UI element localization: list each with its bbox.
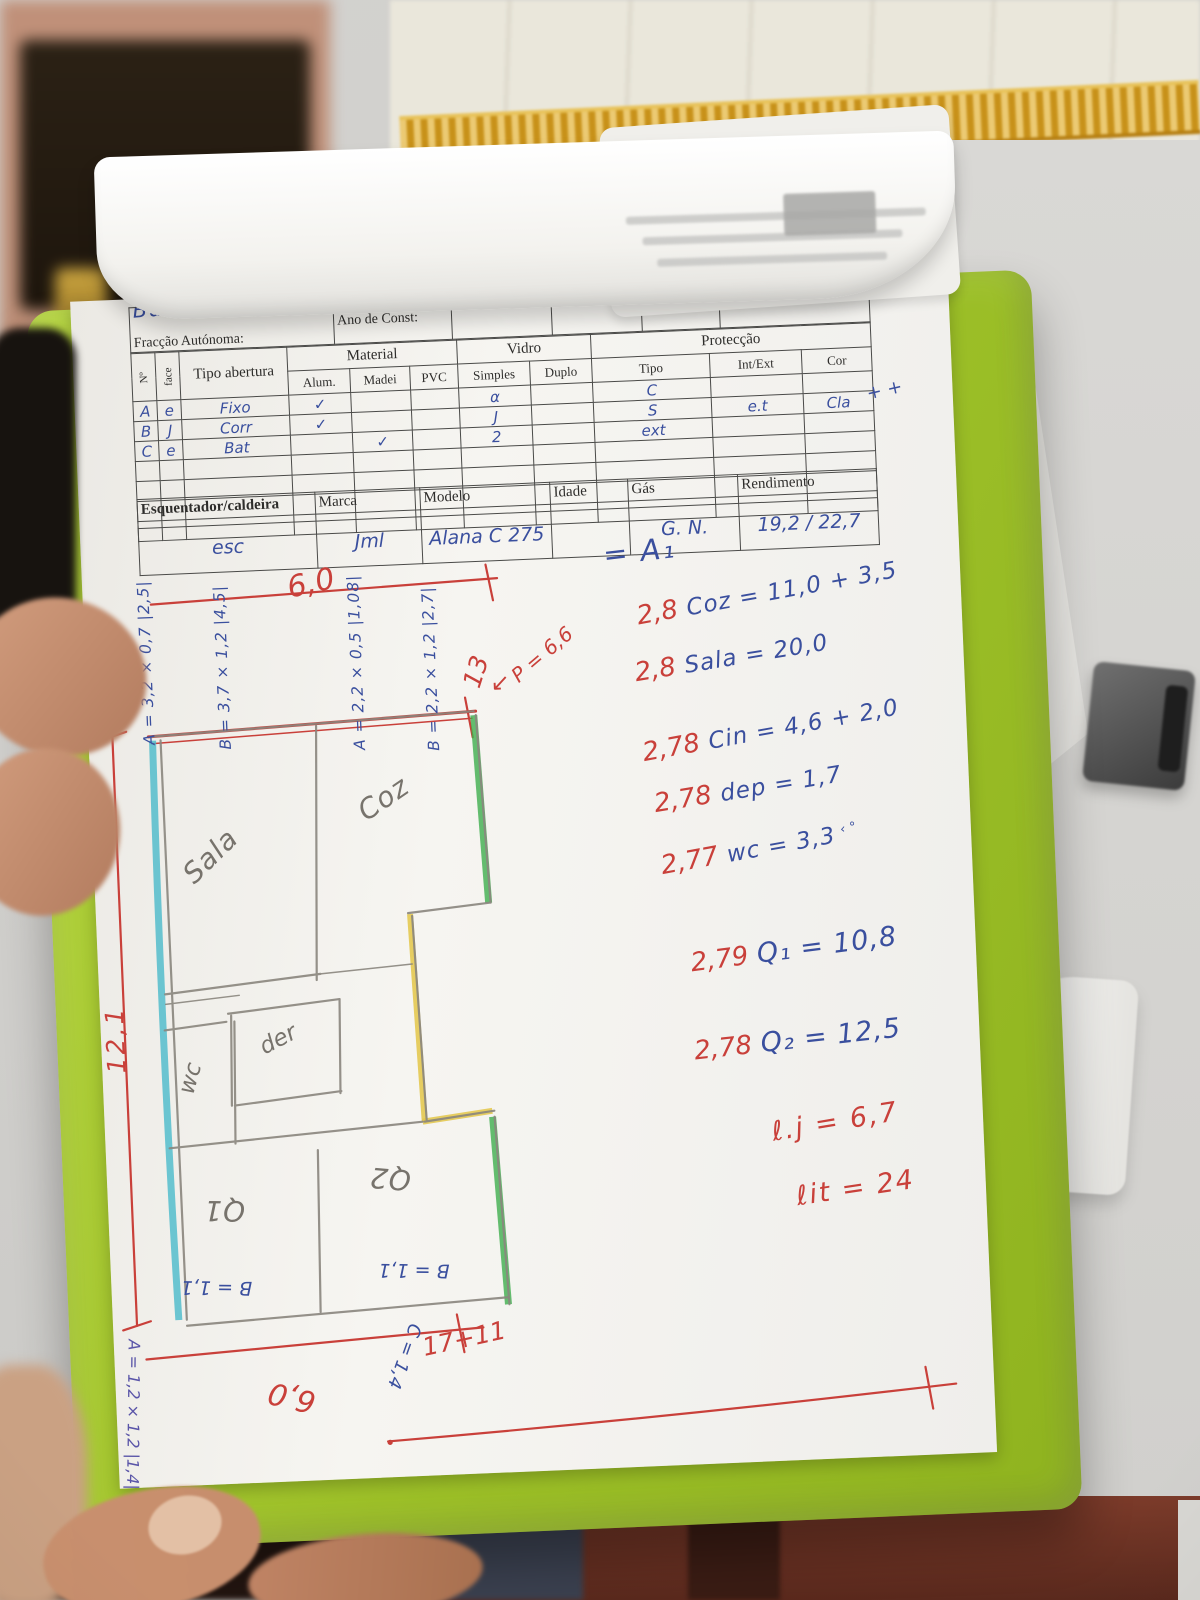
col-pvc: PVC xyxy=(410,364,459,390)
col-num: Nº xyxy=(131,353,157,402)
room-q1: Q1 xyxy=(203,1194,245,1227)
col-simples: Simples xyxy=(458,361,531,388)
camera-device xyxy=(1082,661,1196,791)
heater-col-gas: Gás xyxy=(628,474,739,508)
calc-lj: ℓ.j = 6,7 xyxy=(769,1096,900,1147)
dim-left-height: 12,1 xyxy=(100,1005,132,1074)
green-marker-wall-bottom xyxy=(493,1116,509,1304)
wall-corner xyxy=(1178,1500,1200,1600)
calc-line-q2: 2,78Q₂ = 12,5 xyxy=(693,1012,903,1066)
clipboard: Bacah Olange Fracção Autónoma: Ano de Co… xyxy=(26,270,1082,1551)
pencil-walls xyxy=(150,711,510,1327)
dim-a-bottom: A = 1,2 × 1,2 |1,4| xyxy=(123,1339,144,1490)
survey-sheet: Bacah Olange Fracção Autónoma: Ano de Co… xyxy=(70,265,997,1489)
room-q2: Q2 xyxy=(368,1160,412,1196)
calc-line-q1: 2,79Q₁ = 10,8 xyxy=(689,921,899,979)
rolled-pages xyxy=(94,131,959,322)
photo-scene: Bacah Olange Fracção Autónoma: Ano de Co… xyxy=(0,0,1200,1600)
calc-lit: ℓit = 24 xyxy=(794,1164,917,1212)
col-face: face xyxy=(155,352,181,401)
print-smudge xyxy=(657,252,887,267)
print-smudge xyxy=(626,207,926,224)
dim-q2-b: B = 1,1 xyxy=(359,1259,469,1282)
yellow-marker-wall xyxy=(410,914,425,1122)
green-marker-wall-top xyxy=(474,715,489,903)
col-alum: Alum. xyxy=(288,369,351,396)
arm-sleeve xyxy=(0,328,76,633)
perimeter-arrow-icon: ↙ xyxy=(490,670,510,697)
print-smudge-block xyxy=(783,191,876,236)
dim-q1-b: B = 1,1 xyxy=(161,1276,271,1299)
heater-col-idade: Idade xyxy=(550,479,629,511)
col-duplo: Duplo xyxy=(530,358,593,385)
col-tipo-abertura: Tipo abertura xyxy=(179,347,289,399)
col-madei: Madei xyxy=(350,366,411,392)
heater-col-marca: Marca xyxy=(315,488,421,521)
col-cor: Cor xyxy=(801,347,872,374)
camera-lens xyxy=(1157,685,1188,773)
